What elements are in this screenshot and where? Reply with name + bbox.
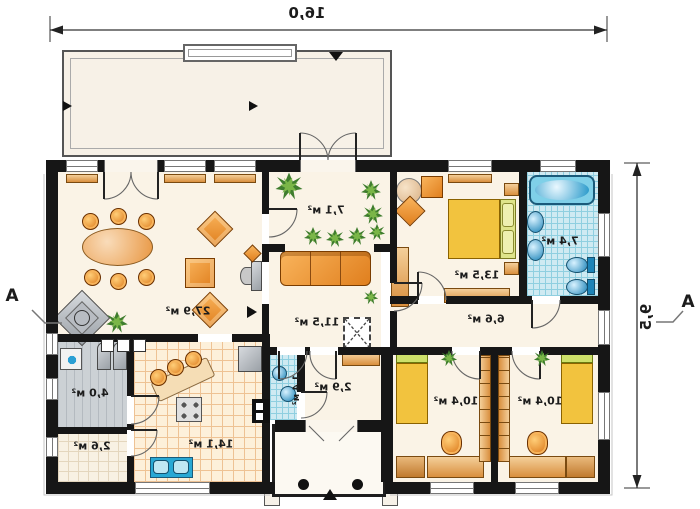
entrance-door-opening — [305, 420, 358, 432]
kitchen-cabinet — [133, 339, 146, 352]
wc-sink — [272, 366, 287, 381]
dimension-width-label: 16,0 — [288, 4, 325, 22]
nightstand — [504, 183, 519, 196]
hall-floor — [390, 304, 598, 347]
dining-chair — [138, 213, 155, 230]
room-label-hall: 6,6 м² — [467, 313, 504, 326]
wall — [305, 347, 310, 355]
wall — [269, 244, 285, 252]
door-opening — [104, 160, 158, 172]
wall — [262, 244, 269, 262]
area-text: 10,4 м² — [518, 395, 563, 408]
desk-chair — [527, 431, 548, 455]
section-text: A — [5, 286, 18, 306]
room-label-utility: 4,0 м² — [71, 387, 108, 400]
pillow — [502, 230, 514, 254]
wall — [232, 334, 270, 342]
terrace-planter-inner — [188, 49, 292, 57]
vent-opening — [256, 413, 263, 420]
sofa — [185, 258, 215, 288]
wall — [480, 347, 512, 355]
closet — [498, 355, 510, 462]
dining-chair — [138, 269, 155, 286]
tv-icon — [240, 267, 252, 285]
wall — [127, 456, 134, 482]
area-text: 13,5 м² — [455, 269, 500, 282]
wall — [560, 296, 598, 304]
window-sill — [164, 174, 206, 183]
wardrobe — [396, 456, 425, 478]
window — [515, 482, 559, 494]
room-label-bathroom: 7,4 м² — [541, 235, 578, 248]
wall — [390, 296, 418, 304]
window — [430, 482, 474, 494]
window — [164, 160, 206, 172]
area-text: 6,6 м² — [467, 313, 504, 326]
window — [598, 310, 610, 345]
area-text: 11,5 м² — [295, 316, 340, 329]
desk — [509, 456, 566, 478]
window-sill — [448, 174, 492, 183]
stove — [176, 397, 202, 422]
dining-chair — [110, 273, 127, 290]
section-marker-right: A — [681, 292, 694, 312]
section-text: A — [681, 292, 694, 312]
bar-stool — [167, 359, 184, 376]
area-text: 7,1 м² — [307, 204, 344, 217]
dimension-text: 9,5 — [637, 304, 655, 331]
wall — [540, 347, 598, 355]
double-bed — [448, 199, 500, 259]
terrace-inner-line — [70, 58, 384, 149]
wall — [446, 296, 532, 304]
dimension-width — [50, 16, 607, 42]
area-text: 1,4 м² — [292, 375, 302, 405]
room-label-pantry: 2,6 м² — [73, 440, 110, 453]
wall — [58, 427, 127, 434]
area-text: 7,4 м² — [541, 235, 578, 248]
desk — [427, 456, 484, 478]
wall — [390, 172, 397, 283]
wall — [127, 424, 134, 430]
washing-machine — [60, 348, 82, 370]
window — [66, 160, 98, 172]
window — [540, 160, 576, 172]
window — [135, 482, 210, 494]
tv-cabinet — [251, 261, 262, 291]
single-bed — [561, 363, 593, 424]
room-label-child-right: 10,4 м² — [518, 395, 563, 408]
room-label-child-left: 10,4 м² — [434, 395, 479, 408]
window — [46, 437, 58, 457]
area-text: 10,4 м² — [434, 395, 479, 408]
entrance-porch — [272, 424, 386, 497]
window-sill — [214, 174, 256, 183]
room-label-corridor: 11,5 м² — [295, 316, 340, 329]
window — [46, 378, 58, 400]
area-text: 4,0 м² — [71, 387, 108, 400]
wall — [385, 482, 610, 494]
window-sill — [66, 174, 98, 183]
wall — [381, 352, 393, 482]
kitchen-cabinet — [117, 339, 130, 352]
bathtub-basin — [535, 180, 589, 200]
closet — [479, 355, 491, 462]
dining-table — [82, 228, 153, 266]
wall — [519, 172, 527, 296]
sink — [527, 211, 544, 233]
pillow — [502, 203, 514, 227]
room-label-wc: 1,4 м² — [282, 385, 312, 395]
room-label-kitchen: 14,1 м² — [189, 438, 234, 451]
desk-chair — [441, 431, 462, 455]
section-marker-left: A — [5, 286, 18, 306]
wall — [491, 355, 498, 482]
section-line-right — [656, 311, 683, 322]
sink-bowl — [173, 460, 189, 474]
window — [448, 160, 492, 172]
attic-hatch — [343, 317, 371, 349]
room-label-entry: 2,9 м² — [314, 381, 351, 394]
dimension-height-label: 9,5 — [633, 308, 660, 326]
single-bed — [396, 363, 428, 424]
room-label-winter-garden: 7,1 м² — [307, 204, 344, 217]
area-text: 14,1 м² — [189, 438, 234, 451]
armchair — [421, 176, 443, 198]
door-opening — [300, 160, 356, 172]
bidet — [566, 279, 588, 295]
bidet-tank — [587, 279, 595, 295]
area-text: 27,9 м² — [166, 305, 211, 318]
floor-plan: 16,0 9,5 A A 27,9 м² 7,1 м² 11,5 м² 13,5… — [0, 0, 700, 509]
wall — [262, 172, 269, 214]
nightstand — [504, 262, 519, 275]
window — [598, 213, 610, 257]
window — [598, 392, 610, 440]
wall — [270, 347, 277, 355]
window — [46, 333, 58, 355]
dining-chair — [84, 269, 101, 286]
kitchen-cabinet — [101, 339, 114, 352]
fridge — [238, 346, 262, 372]
toilet-tank — [587, 257, 595, 273]
hall-sofa — [280, 251, 371, 286]
sink-bowl — [153, 460, 169, 474]
window — [214, 160, 256, 172]
porch-column — [298, 479, 309, 490]
room-label-living: 27,9 м² — [166, 305, 211, 318]
bar-stool — [150, 369, 167, 386]
dimension-text: 16,0 — [288, 4, 325, 22]
room-label-bedroom-main: 13,5 м² — [455, 269, 500, 282]
toilet — [566, 257, 588, 273]
porch-column — [352, 479, 363, 490]
bar-stool — [185, 351, 202, 368]
dining-chair — [82, 213, 99, 230]
fireplace-flue-icon — [74, 310, 90, 326]
area-text: 2,9 м² — [314, 381, 351, 394]
dining-chair — [110, 208, 127, 225]
wall — [390, 311, 397, 352]
vent-opening — [256, 403, 263, 410]
area-text: 2,6 м² — [73, 440, 110, 453]
wall — [338, 347, 381, 355]
wardrobe — [566, 456, 595, 478]
